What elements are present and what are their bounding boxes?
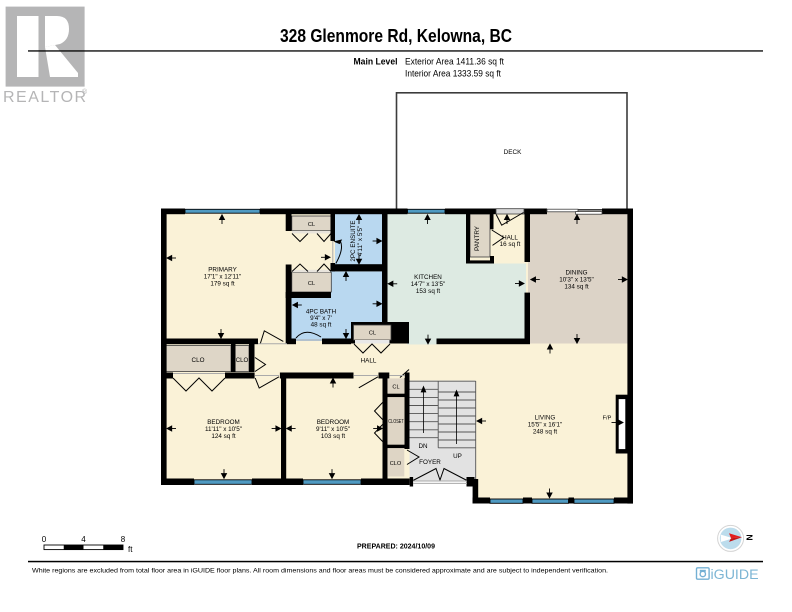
svg-text:CL: CL (308, 222, 315, 228)
svg-text:®: ® (82, 88, 88, 96)
svg-text:CL: CL (392, 385, 399, 391)
svg-text:LIVING: LIVING (535, 415, 556, 422)
svg-text:10'3" x 13'5": 10'3" x 13'5" (559, 277, 594, 284)
svg-text:White regions are excluded fro: White regions are excluded from total fl… (32, 568, 608, 575)
svg-text:DINING: DINING (565, 270, 587, 277)
svg-text:CLO: CLO (390, 461, 402, 467)
svg-text:248 sq ft: 248 sq ft (533, 429, 557, 436)
svg-text:48 sq ft: 48 sq ft (311, 321, 332, 328)
svg-text:124 sq ft: 124 sq ft (211, 433, 235, 440)
svg-text:PANTRY: PANTRY (474, 225, 481, 251)
svg-text:DN: DN (418, 443, 428, 450)
svg-text:134 sq ft: 134 sq ft (564, 284, 588, 291)
svg-text:16 sq ft: 16 sq ft (500, 241, 521, 248)
svg-text:15'5" x 16'1": 15'5" x 16'1" (528, 422, 563, 429)
svg-text:CL: CL (369, 331, 376, 337)
svg-text:F/P: F/P (603, 416, 612, 422)
svg-text:CLO: CLO (192, 357, 205, 364)
svg-text:Interior Area 1333.59 sq ft: Interior Area 1333.59 sq ft (405, 69, 501, 80)
svg-text:PRIMARY: PRIMARY (208, 267, 237, 274)
svg-text:11'11" x 10'5": 11'11" x 10'5" (205, 426, 242, 433)
svg-text:Main Level: Main Level (354, 57, 398, 68)
svg-text:103 sq ft: 103 sq ft (321, 433, 345, 440)
svg-text:N: N (745, 534, 755, 540)
svg-text:179 sq ft: 179 sq ft (210, 281, 234, 288)
svg-text:DECK: DECK (504, 149, 522, 156)
svg-text:KITCHEN: KITCHEN (414, 274, 442, 281)
svg-text:BEDROOM: BEDROOM (317, 419, 350, 426)
svg-text:CL: CL (308, 281, 315, 287)
svg-text:0: 0 (42, 535, 47, 544)
svg-text:UP: UP (453, 453, 462, 460)
svg-text:iGUIDE: iGUIDE (711, 567, 759, 583)
svg-text:8: 8 (121, 535, 126, 544)
svg-text:BEDROOM: BEDROOM (207, 419, 240, 426)
svg-text:4'11" x 5'5": 4'11" x 5'5" (357, 226, 364, 257)
svg-text:9'11" x 10'5": 9'11" x 10'5" (316, 426, 350, 433)
svg-text:REALTOR: REALTOR (3, 89, 88, 106)
svg-text:4: 4 (81, 535, 86, 544)
svg-text:CLO: CLO (236, 357, 249, 364)
svg-text:153 sq ft: 153 sq ft (416, 288, 440, 295)
svg-text:HALL: HALL (361, 358, 377, 365)
svg-text:14'7" x 13'5": 14'7" x 13'5" (411, 281, 446, 288)
svg-text:17'1" x 12'11": 17'1" x 12'11" (204, 274, 242, 281)
svg-text:PREPARED: 2024/10/09: PREPARED: 2024/10/09 (357, 542, 435, 551)
svg-text:Exterior Area 1411.36 sq ft: Exterior Area 1411.36 sq ft (405, 57, 504, 68)
svg-text:FOYER: FOYER (419, 459, 441, 466)
svg-text:CLOSET: CLOSET (388, 419, 404, 425)
svg-text:ft: ft (128, 545, 133, 554)
svg-text:328 Glenmore Rd, Kelowna, BC: 328 Glenmore Rd, Kelowna, BC (280, 25, 512, 46)
